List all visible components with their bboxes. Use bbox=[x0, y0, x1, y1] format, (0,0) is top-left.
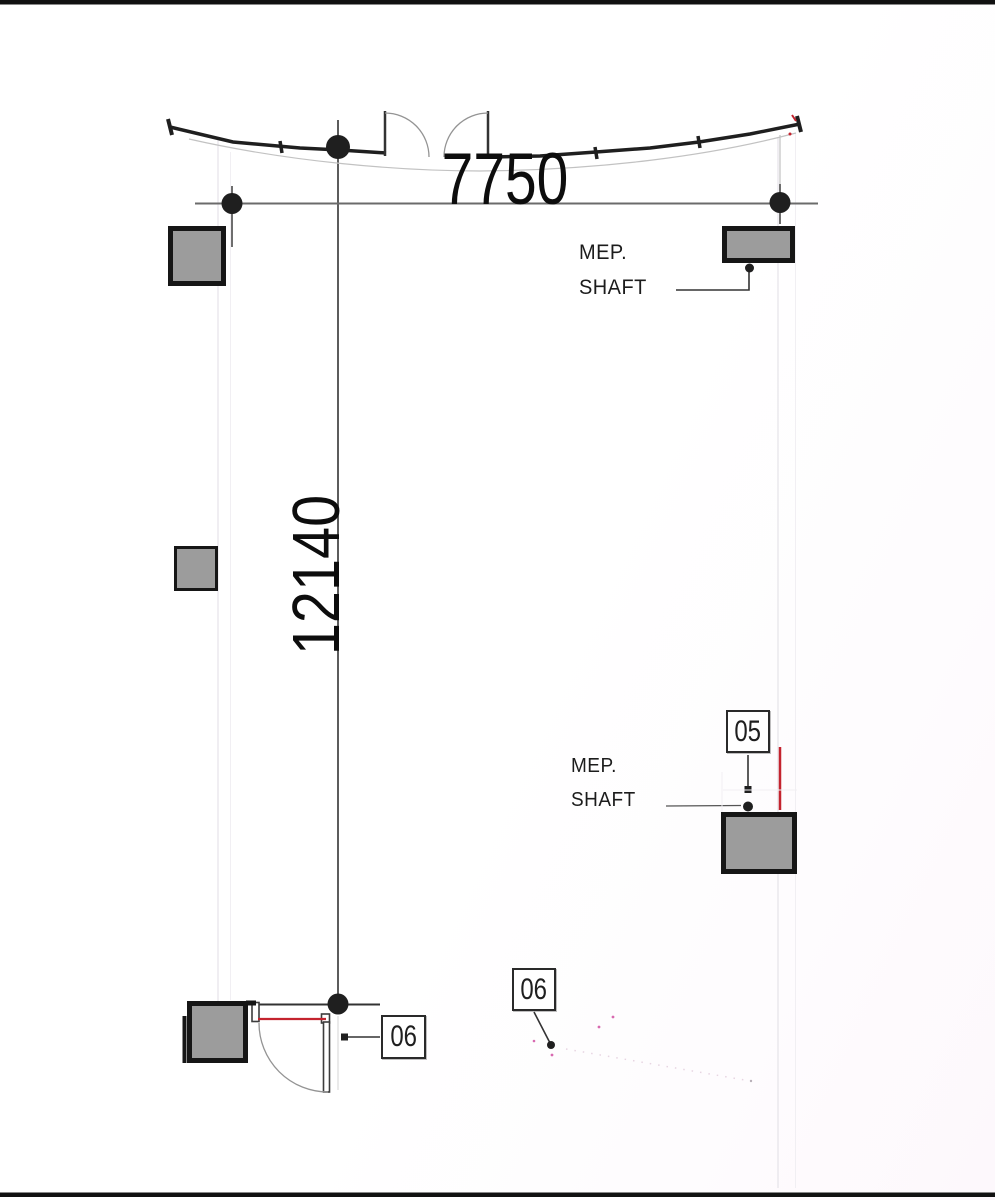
floor-plan-canvas: 7750 12140 MEP. SHAFT MEP. SHAFT 05 06 0… bbox=[0, 0, 995, 1200]
mullion-tick bbox=[698, 136, 700, 148]
keynote-tag-05: 05 bbox=[726, 710, 770, 753]
mep-shaft-bottom-label-line1: MEP. bbox=[571, 755, 617, 777]
leader-dot-icon bbox=[745, 264, 754, 273]
mep-bottom-leader-line bbox=[666, 806, 741, 807]
top-frame-bar bbox=[0, 0, 995, 5]
mep-top-leader-line bbox=[676, 272, 749, 290]
door-leaf-bottom bbox=[324, 1022, 330, 1092]
column-top-left bbox=[168, 226, 226, 286]
red-end-dot bbox=[789, 133, 792, 136]
red-end-mark bbox=[792, 115, 796, 121]
mep-shaft-top-label-line2: SHAFT bbox=[579, 277, 647, 299]
column-mid-left bbox=[174, 546, 218, 591]
dimension-vertical-12140: 12140 bbox=[286, 480, 346, 669]
plot-speck bbox=[598, 1026, 601, 1029]
grid-bubble-icon bbox=[328, 994, 349, 1015]
dimension-horizontal-7750: 7750 bbox=[411, 147, 598, 211]
facade-end-cap-right bbox=[797, 116, 801, 132]
facade-wall-left bbox=[170, 127, 386, 153]
mep-shaft-bottom-right bbox=[721, 812, 797, 874]
leader-dot-icon bbox=[547, 1041, 555, 1049]
door-swing-arc-bottom bbox=[259, 1023, 328, 1092]
mep-shaft-top-label-line1: MEP. bbox=[579, 242, 627, 264]
keynote-tag-06-mid-label: 06 bbox=[521, 975, 548, 1005]
mep-shaft-bottom-label-line2: SHAFT bbox=[571, 789, 636, 811]
plot-speck bbox=[750, 1080, 752, 1082]
mullion-tick bbox=[280, 141, 282, 153]
grid-bubble-icon bbox=[770, 192, 791, 213]
keynote-tag-05-label: 05 bbox=[735, 717, 762, 747]
plot-speck bbox=[533, 1040, 536, 1043]
grid-bubble-icon bbox=[222, 193, 243, 214]
shaft-bottom-left bbox=[187, 1001, 248, 1063]
keynote-tag-06-left: 06 bbox=[381, 1015, 426, 1059]
keynote-tag-06-mid: 06 bbox=[512, 968, 556, 1011]
plot-speck bbox=[551, 1054, 554, 1057]
leader-dot-icon bbox=[743, 802, 753, 812]
facade-end-cap-left bbox=[168, 119, 172, 135]
leader-square-icon bbox=[341, 1034, 348, 1041]
faint-dotted-trail bbox=[566, 1049, 756, 1082]
tag06-mid-leader-line bbox=[534, 1012, 550, 1042]
keynote-tag-06-left-label: 06 bbox=[390, 1022, 417, 1052]
plot-speck bbox=[612, 1016, 615, 1019]
mep-shaft-top-right bbox=[722, 226, 795, 263]
grid-bubble-icon bbox=[326, 135, 350, 159]
bottom-frame-bar bbox=[0, 1193, 995, 1198]
